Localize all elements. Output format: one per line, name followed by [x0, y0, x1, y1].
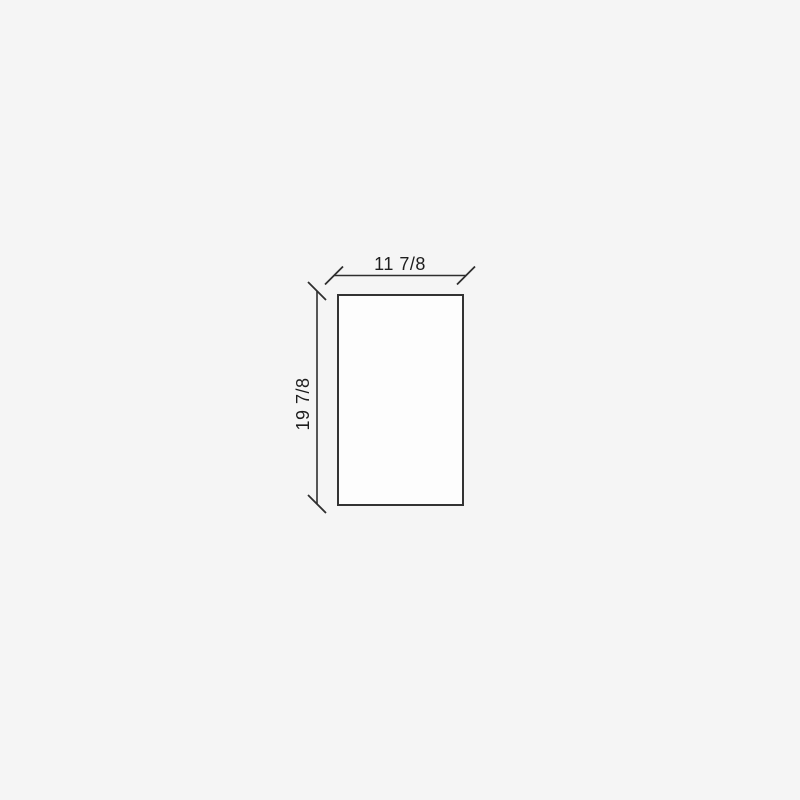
height-dimension: 19 7/8	[293, 282, 326, 513]
drawing-canvas: 11 7/8 19 7/8	[0, 0, 800, 800]
dimension-drawing: 11 7/8 19 7/8	[0, 0, 800, 800]
rectangle-outline	[338, 295, 463, 505]
width-dimension: 11 7/8	[325, 254, 475, 285]
height-dimension-label: 19 7/8	[293, 377, 313, 430]
width-dimension-label: 11 7/8	[374, 254, 426, 274]
